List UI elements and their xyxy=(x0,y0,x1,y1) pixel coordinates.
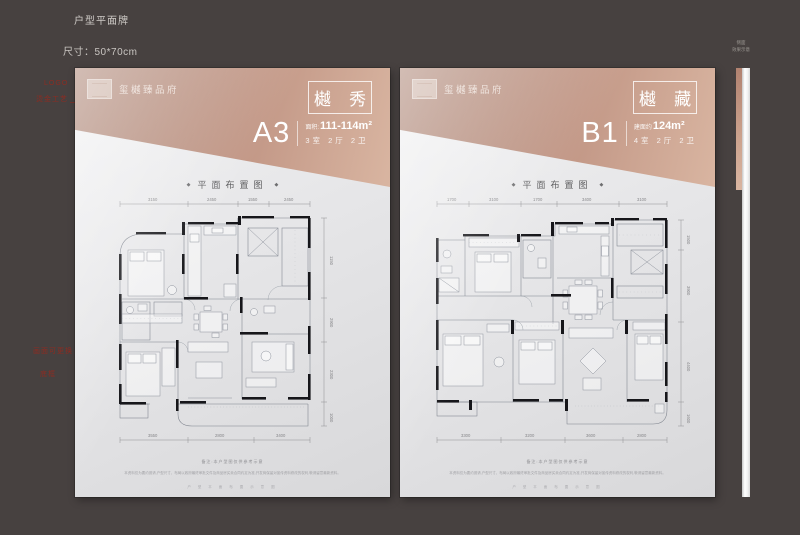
svg-text:3900: 3900 xyxy=(686,286,691,296)
unit-name-box: 樾 藏 xyxy=(633,81,697,114)
plan-caption: 备注:本户型图仅供参考示意 xyxy=(75,459,390,465)
panel-footer-row: 户 型 平 面 布 置 示 意 图 xyxy=(400,485,715,490)
logo-seal-icon xyxy=(412,79,437,99)
diamond-icon: ◆ xyxy=(275,182,279,188)
unit-code: B1 xyxy=(581,119,618,148)
floorplan-b1: 1700 3100 1700 3400 3100 1500 3900 4400 … xyxy=(417,194,698,456)
side-profile-label: 侧面效果示意 xyxy=(720,40,762,54)
logo-text: 玺樾臻品府 xyxy=(444,82,504,96)
production-note-foil: 烫金工艺 xyxy=(36,96,68,103)
panel-a3: 玺樾臻品府 樾 秀 A3 面积:111-114m² 3室 2厅 2卫 ◆平面布置… xyxy=(75,68,390,497)
side-profile-white-bar xyxy=(742,68,750,497)
sheet-title: 户型平面牌 xyxy=(74,12,129,27)
svg-text:2450: 2450 xyxy=(207,197,217,202)
svg-text:2900: 2900 xyxy=(329,318,334,328)
diamond-icon: ◆ xyxy=(512,182,516,188)
panel-b1-logo: 玺樾臻品府 xyxy=(412,79,504,99)
plan-heading: ◆平面布置图◆ xyxy=(400,178,715,191)
floorplan-a3: 3150 2450 1550 2450 1150 2900 2300 1000 … xyxy=(92,194,373,456)
svg-text:3200: 3200 xyxy=(525,433,535,438)
svg-text:3150: 3150 xyxy=(148,197,158,202)
side-profile-copper-bar xyxy=(736,68,742,190)
plan-caption: 备注:本户型图仅供参考示意 xyxy=(400,459,715,465)
svg-text:2450: 2450 xyxy=(284,197,294,202)
panel-disclaimer: 本资料仅为要约邀请,户型尺寸、布局以政府最终审批文件及商品房买卖合同约定为准,开… xyxy=(440,471,675,477)
unit-name-label: 樾 秀 xyxy=(314,85,373,110)
production-note-frame: 底框 xyxy=(40,371,56,378)
divider xyxy=(297,121,298,146)
unit-area: 面积:111-114m² xyxy=(305,121,372,132)
svg-text:3100: 3100 xyxy=(637,197,647,202)
svg-text:1500: 1500 xyxy=(686,235,691,245)
svg-text:1600: 1600 xyxy=(686,414,691,424)
svg-text:3100: 3100 xyxy=(489,197,499,202)
unit-code: A3 xyxy=(253,119,290,148)
unit-area: 建面约124m² xyxy=(634,121,697,132)
svg-text:3600: 3600 xyxy=(586,433,596,438)
unit-info-row: A3 面积:111-114m² 3室 2厅 2卫 xyxy=(253,119,372,148)
svg-text:1700: 1700 xyxy=(533,197,543,202)
svg-text:3400: 3400 xyxy=(276,433,286,438)
panel-footer-row: 户 型 平 面 布 置 示 意 图 xyxy=(75,485,390,490)
svg-text:2300: 2300 xyxy=(329,370,334,380)
svg-text:3550: 3550 xyxy=(148,433,158,438)
diamond-icon: ◆ xyxy=(187,182,191,188)
unit-name-box: 樾 秀 xyxy=(308,81,372,114)
svg-text:2800: 2800 xyxy=(637,433,647,438)
sheet-size-label: 尺寸：50*70cm xyxy=(63,43,137,58)
logo-seal-icon xyxy=(87,79,112,99)
svg-text:2800: 2800 xyxy=(215,433,225,438)
svg-text:1000: 1000 xyxy=(329,413,334,423)
production-note-replaceable: 画面可更换 xyxy=(33,348,73,355)
svg-text:3400: 3400 xyxy=(582,197,592,202)
plan-heading: ◆平面布置图◆ xyxy=(75,178,390,191)
divider xyxy=(626,121,627,146)
svg-text:3300: 3300 xyxy=(461,433,471,438)
unit-config: 4室 2厅 2卫 xyxy=(634,135,697,146)
svg-text:1150: 1150 xyxy=(329,256,334,266)
unit-name-label: 樾 藏 xyxy=(639,85,698,110)
panel-disclaimer: 本资料仅为要约邀请,户型尺寸、布局以政府最终审批文件及商品房买卖合同约定为准,开… xyxy=(115,471,350,477)
diamond-icon: ◆ xyxy=(600,182,604,188)
svg-text:1700: 1700 xyxy=(447,197,457,202)
svg-text:4400: 4400 xyxy=(686,362,691,372)
unit-info-row: B1 建面约124m² 4室 2厅 2卫 xyxy=(581,119,697,148)
svg-text:1550: 1550 xyxy=(248,197,258,202)
unit-config: 3室 2厅 2卫 xyxy=(305,135,372,146)
production-note-logo: LOGO xyxy=(44,80,68,87)
panel-b1: 玺樾臻品府 樾 藏 B1 建面约124m² 4室 2厅 2卫 ◆平面布置图◆ 1… xyxy=(400,68,715,497)
logo-text: 玺樾臻品府 xyxy=(119,82,179,96)
panel-a3-logo: 玺樾臻品府 xyxy=(87,79,179,99)
